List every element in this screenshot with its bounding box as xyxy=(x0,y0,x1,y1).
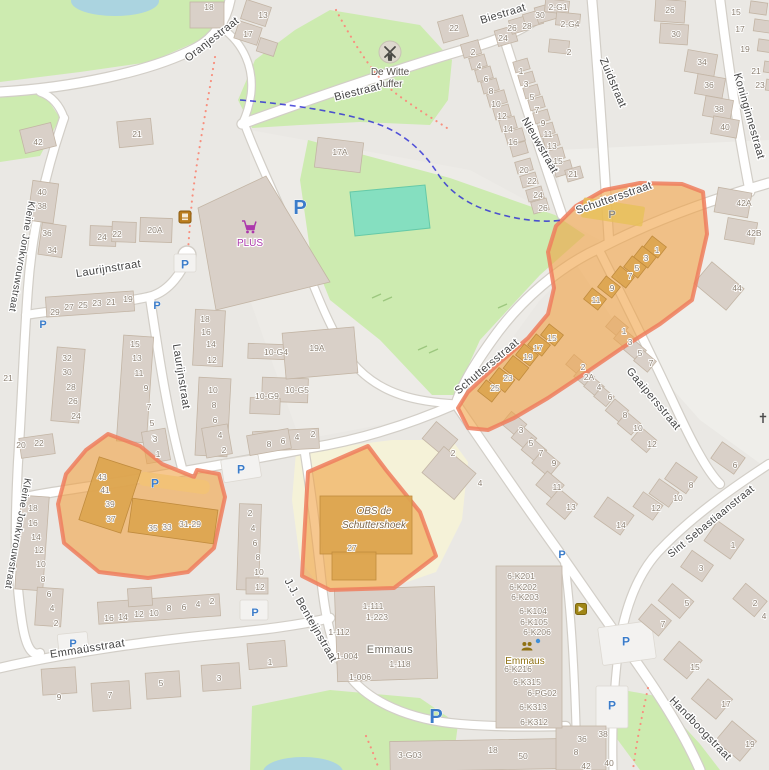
house-number-label: 40 xyxy=(604,758,614,768)
house-number-label: 16 xyxy=(104,613,114,623)
house-number-label: 23 xyxy=(92,298,102,308)
house-number-label: 42A xyxy=(736,198,752,208)
house-number-label: 23 xyxy=(755,80,765,90)
house-number-label: 1-111 xyxy=(363,601,384,611)
house-number-label: 8 xyxy=(167,603,172,613)
house-number-label: 15 xyxy=(731,7,741,17)
house-number-label: 33 xyxy=(162,522,172,532)
house-number-label: 31-29 xyxy=(179,519,201,529)
parking-icon[interactable]: P xyxy=(69,638,76,650)
house-number-label: 18 xyxy=(488,745,498,755)
house-number-label: 38 xyxy=(37,201,47,211)
house-number-label: 11 xyxy=(135,368,144,378)
house-number-label: 2 xyxy=(567,47,572,57)
house-number-label: 5 xyxy=(529,438,534,448)
house-number-label: 10-G4 xyxy=(264,347,288,357)
house-number-label: 36 xyxy=(577,734,587,744)
house-number-label: 4 xyxy=(477,61,482,71)
house-number-label: 50 xyxy=(518,751,528,761)
house-number-label: 6 xyxy=(213,415,218,425)
amenity-icon[interactable] xyxy=(179,211,191,223)
house-number-label: 16 xyxy=(28,518,38,528)
house-number-label: 21 xyxy=(751,66,761,76)
house-number-label: 5 xyxy=(685,598,690,608)
house-number-label: 12 xyxy=(207,355,217,365)
house-number-label: 34 xyxy=(697,57,707,67)
house-number-label: 15 xyxy=(547,333,557,343)
house-number-label: 1 xyxy=(519,66,524,76)
house-number-label: 27 xyxy=(347,543,357,553)
house-number-label: 1-112 xyxy=(328,627,350,637)
house-number-label: 40 xyxy=(720,122,730,132)
house-number-label: 2 xyxy=(753,598,758,608)
house-number-label: 19 xyxy=(745,739,755,749)
house-number-label: 5 xyxy=(530,92,535,102)
house-number-label: 14 xyxy=(616,520,626,530)
house-number-label: 8 xyxy=(267,439,272,449)
house-number-label: 10-G5 xyxy=(285,385,309,395)
amenity-icon[interactable] xyxy=(576,604,587,615)
house-number-label: 8 xyxy=(256,552,261,562)
house-number-label: 1 xyxy=(268,657,273,667)
house-number-label: 20 xyxy=(519,165,529,175)
house-number-label: 8 xyxy=(41,574,46,584)
house-number-label: 2 xyxy=(248,508,253,518)
house-number-label: 6-K203 xyxy=(511,592,539,602)
house-number-label: 1 xyxy=(622,326,627,336)
house-number-label: 2 xyxy=(451,448,456,458)
house-number-label: 3-G03 xyxy=(398,750,422,760)
house-number-label: 12 xyxy=(497,111,507,121)
house-number-label: 6-K312 xyxy=(520,717,548,727)
house-number-label: 36 xyxy=(704,80,714,90)
house-number-label: 4 xyxy=(251,523,256,533)
house-number-label: 29 xyxy=(50,307,60,317)
house-number-label: 15 xyxy=(130,339,140,349)
house-number-label: 6 xyxy=(608,392,613,402)
house-number-label: 4 xyxy=(762,611,767,621)
house-number-label: 2 xyxy=(210,596,215,606)
house-number-label: 11 xyxy=(544,129,553,139)
house-number-label: 10 xyxy=(491,99,501,109)
house-number-label: 12 xyxy=(651,503,661,513)
house-number-label: 14 xyxy=(118,612,128,622)
house-number-label: 22 xyxy=(112,229,122,239)
house-number-label: 22 xyxy=(34,438,44,448)
house-number-label: 13 xyxy=(132,353,142,363)
house-number-label: 4 xyxy=(478,478,483,488)
house-number-label: 24 xyxy=(498,33,508,43)
house-number-label: 9 xyxy=(541,118,546,128)
house-number-label: 26 xyxy=(538,203,548,213)
poi-label-supermarket: PLUS xyxy=(237,238,263,249)
house-number-label: 37 xyxy=(106,514,116,524)
poi-label-windmill: Juffer xyxy=(378,79,403,90)
house-number-label: 6 xyxy=(182,602,187,612)
house-number-label: 44 xyxy=(732,283,742,293)
house-number-label: 4 xyxy=(218,430,223,440)
poi-label-emmaus-building: Emmaus xyxy=(367,644,413,656)
house-number-label: 38 xyxy=(598,729,608,739)
house-number-label: 6-K202 xyxy=(509,582,537,592)
house-number-label: 10 xyxy=(208,385,218,395)
house-number-label: 6-K315 xyxy=(513,677,541,687)
sports-pitch xyxy=(350,185,430,236)
house-number-label: 2 xyxy=(471,47,476,57)
parking-icon[interactable]: P xyxy=(608,698,616,712)
house-number-label: 18 xyxy=(200,314,210,324)
house-number-label: 15 xyxy=(690,662,700,672)
house-number-label: 13 xyxy=(547,141,557,151)
house-number-label: 6 xyxy=(281,436,286,446)
house-number-label: 6-K104 xyxy=(519,606,547,616)
poi-label-school: Schuttershoek xyxy=(342,520,407,531)
house-number-label: 1-118 xyxy=(389,659,411,669)
house-number-label: 1-223 xyxy=(366,612,388,622)
house-number-label: 10 xyxy=(149,608,159,618)
house-number-label: 21 xyxy=(3,373,13,383)
house-number-label: 22 xyxy=(449,23,459,33)
parking-icon[interactable]: P xyxy=(153,300,160,312)
house-number-label: 19 xyxy=(740,44,750,54)
house-number-label: 21 xyxy=(132,129,142,139)
house-number-label: 2 xyxy=(222,445,227,455)
house-number-label: 25 xyxy=(78,300,88,310)
house-number-label: 9 xyxy=(57,692,62,702)
house-number-label: 1-006 xyxy=(349,672,371,682)
windmill-icon[interactable] xyxy=(379,41,401,63)
house-number-label: 14 xyxy=(31,532,41,542)
parking-icon[interactable]: P xyxy=(558,549,565,561)
house-number-label: 7 xyxy=(147,402,152,412)
house-number-label: 19 xyxy=(523,352,533,362)
house-number-label: 41 xyxy=(100,485,110,495)
house-number-label: 8 xyxy=(489,86,494,96)
house-number-label: 12 xyxy=(647,439,657,449)
house-number-label: 19 xyxy=(123,294,133,304)
house-number-label: 30 xyxy=(535,10,545,20)
house-number-label: 6 xyxy=(47,589,52,599)
house-number-label: 23 xyxy=(503,373,513,383)
house-number-label: 43 xyxy=(97,472,107,482)
house-number-label: 25 xyxy=(490,383,500,393)
house-number-label: 4 xyxy=(196,599,201,609)
house-number-label: 26 xyxy=(507,23,517,33)
house-number-label: 20 xyxy=(16,440,26,450)
house-number-label: 9 xyxy=(610,283,615,293)
parking-icon[interactable]: P xyxy=(151,476,159,490)
house-number-label: 7 xyxy=(628,271,633,281)
house-number-label: 6-K201 xyxy=(507,571,535,581)
house-number-label: 24 xyxy=(97,232,107,242)
house-number-label: 6-K206 xyxy=(523,627,551,637)
poi-dot-icon[interactable] xyxy=(536,639,540,643)
house-number-label: 28 xyxy=(522,21,532,31)
house-number-label: 22 xyxy=(527,176,537,186)
house-number-label: 42 xyxy=(581,761,591,770)
house-number-label: 32 xyxy=(62,353,72,363)
house-number-label: 26 xyxy=(665,5,675,15)
parking-icon[interactable]: P xyxy=(622,634,630,648)
house-number-label: 17 xyxy=(533,343,543,353)
house-number-label: 39 xyxy=(105,499,115,509)
house-number-label: 13 xyxy=(566,502,576,512)
house-number-label: 2A xyxy=(584,372,595,382)
house-number-label: 10 xyxy=(673,493,683,503)
house-number-label: 11 xyxy=(553,482,562,492)
house-number-label: 6-PG02 xyxy=(527,688,557,698)
house-number-label: 7 xyxy=(535,105,540,115)
poi-label-windmill: De Witte xyxy=(371,67,410,78)
house-number-label: 8 xyxy=(623,410,628,420)
house-number-label: 17 xyxy=(243,29,253,39)
house-number-label: 17 xyxy=(721,699,731,709)
house-number-label: 38 xyxy=(714,104,724,114)
house-number-label: 6-K105 xyxy=(520,617,548,627)
house-number-label: 14 xyxy=(503,124,513,134)
house-number-label: 36 xyxy=(42,228,52,238)
house-number-label: 9 xyxy=(552,458,557,468)
house-number-label: 17A xyxy=(332,147,348,157)
parking-icon[interactable]: P xyxy=(181,257,189,271)
house-number-label: 13 xyxy=(258,10,268,20)
house-number-label: 30 xyxy=(671,29,681,39)
house-number-label: 5 xyxy=(635,263,640,273)
house-number-label: 18 xyxy=(28,503,38,513)
house-number-label: 27 xyxy=(64,302,74,312)
house-number-label: 10 xyxy=(36,559,46,569)
house-number-label: 7 xyxy=(108,690,113,700)
house-number-label: 4 xyxy=(295,432,300,442)
house-number-label: 16 xyxy=(201,327,211,337)
house-number-label: 2-G1 xyxy=(548,2,567,12)
house-number-label: 21 xyxy=(568,169,578,179)
house-number-label: 7 xyxy=(539,448,544,458)
house-number-label: 12 xyxy=(134,609,144,619)
house-number-label: 40 xyxy=(37,187,47,197)
house-number-label: 2 xyxy=(581,362,586,372)
house-number-label: 24 xyxy=(533,190,543,200)
house-number-label: 16 xyxy=(508,137,518,147)
house-number-label: 2 xyxy=(311,429,316,439)
house-number-label: 4 xyxy=(50,603,55,613)
house-number-label: 15 xyxy=(553,156,563,166)
house-number-label: 3 xyxy=(699,563,704,573)
house-number-label: 3 xyxy=(644,253,649,263)
parking-icon[interactable]: P xyxy=(608,209,615,221)
house-number-label: 6-K216 xyxy=(504,664,532,674)
house-number-label: 8 xyxy=(574,747,579,757)
house-number-label: 9 xyxy=(144,383,149,393)
house-number-label: 3 xyxy=(524,79,529,89)
house-number-label: 6 xyxy=(253,538,258,548)
house-number-label: 8 xyxy=(689,480,694,490)
parking-icon[interactable]: P xyxy=(429,706,442,728)
house-number-label: 24 xyxy=(71,411,81,421)
map-canvas[interactable]: De Witte Juffer PLUS OBS de Schuttershoe… xyxy=(0,0,769,770)
house-number-label: 7 xyxy=(661,619,666,629)
house-number-label: 34 xyxy=(47,245,57,255)
house-number-label: 35 xyxy=(148,523,158,533)
poi-label-school: OBS de xyxy=(356,506,391,517)
house-number-label: 18 xyxy=(204,2,214,12)
map-viewport[interactable]: De Witte Juffer PLUS OBS de Schuttershoe… xyxy=(0,0,769,770)
house-number-label: 12 xyxy=(255,582,265,592)
house-number-label: 10-G9 xyxy=(255,391,279,401)
house-number-label: 1-004 xyxy=(336,651,358,661)
house-number-label: 19A xyxy=(309,343,325,353)
house-number-label: 1 xyxy=(731,540,736,550)
house-number-label: 14 xyxy=(206,339,216,349)
house-number-label: 5 xyxy=(150,418,155,428)
house-number-label: 20A xyxy=(147,225,163,235)
house-number-label: 1 xyxy=(655,245,660,255)
house-number-label: 28 xyxy=(66,382,76,392)
house-number-label: 3 xyxy=(153,434,158,444)
house-number-label: 10 xyxy=(633,423,643,433)
house-number-label: 26 xyxy=(68,396,78,406)
house-number-label: 11 xyxy=(592,295,601,305)
house-number-label: 42B xyxy=(746,228,762,238)
house-number-label: 1 xyxy=(156,449,161,459)
parking-icon[interactable]: P xyxy=(39,319,46,331)
house-number-label: 6-K313 xyxy=(519,702,547,712)
house-number-label: 2 xyxy=(54,618,59,628)
house-number-label: 6 xyxy=(733,460,738,470)
house-number-label: 6 xyxy=(484,74,489,84)
house-number-label: 8 xyxy=(212,400,217,410)
house-number-label: 42 xyxy=(33,137,43,147)
house-number-label: 3 xyxy=(217,673,222,683)
house-number-label: 21 xyxy=(106,297,116,307)
house-number-label: 10 xyxy=(254,567,264,577)
house-number-label: 30 xyxy=(62,367,72,377)
house-number-label: 4 xyxy=(597,382,602,392)
house-number-label: 5 xyxy=(159,678,164,688)
parking-icon[interactable]: P xyxy=(237,462,245,476)
house-number-label: 7 xyxy=(649,358,654,368)
house-number-label: 3 xyxy=(628,337,633,347)
house-number-label: 2-G4 xyxy=(560,19,579,29)
parking-icon[interactable]: P xyxy=(293,197,306,219)
house-number-label: 12 xyxy=(34,545,44,555)
parking-icon[interactable]: P xyxy=(251,607,258,619)
house-number-label: 5 xyxy=(638,348,643,358)
house-number-label: 17 xyxy=(735,24,745,34)
house-number-label: 3 xyxy=(519,425,524,435)
